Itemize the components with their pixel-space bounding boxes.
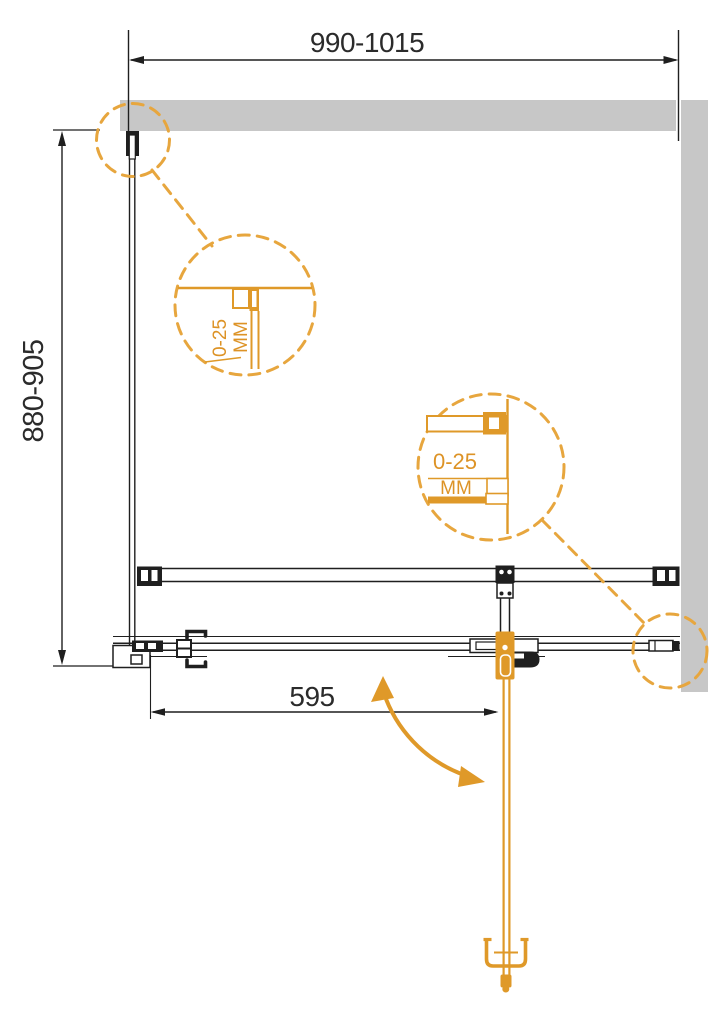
detail-right-range-label: 0-25 [420, 451, 490, 473]
detail-top-range-label: 0-25 [211, 310, 231, 366]
detail-callouts [97, 104, 708, 689]
arrowhead-left [151, 708, 166, 716]
dimension-overall-height [53, 130, 148, 666]
callout-leader-bottom [542, 520, 645, 624]
door-track [113, 637, 680, 657]
door-handle [484, 939, 529, 966]
door-panel [484, 632, 529, 993]
support-bar [161, 569, 653, 582]
arrowhead-left [129, 56, 144, 64]
detail-top-unit-label: MM [232, 315, 252, 359]
arrowhead-top [58, 131, 66, 146]
pivot-point [502, 645, 507, 650]
detail-right-unit-label: MM [421, 479, 491, 498]
arrowhead-right [484, 708, 499, 716]
arrowhead-right [664, 56, 679, 64]
callout-leader-top [152, 170, 212, 246]
support-bar-bracket-left [137, 567, 162, 587]
support-bar-bracket-right [653, 567, 680, 587]
arrowhead-up [371, 676, 394, 702]
support-bar-center-connector [496, 566, 515, 633]
arrowhead-right [458, 766, 485, 787]
fixed-glass-panel [130, 131, 135, 646]
track-bracket-right [649, 641, 680, 652]
wall-profile-bottom-left [113, 641, 163, 668]
swing-direction-arrow [371, 676, 485, 787]
wall-profile-top [126, 131, 139, 159]
overall-height-label: 880-905 [20, 311, 48, 471]
shower-enclosure-diagram: 990-1015 880-905 595 0-25 MM 0-25 MM [0, 0, 728, 1024]
door-width-label: 595 [252, 683, 372, 711]
arrowhead-bottom [58, 650, 66, 665]
overall-width-label: 990-1015 [227, 29, 507, 57]
line-art [0, 0, 728, 1024]
